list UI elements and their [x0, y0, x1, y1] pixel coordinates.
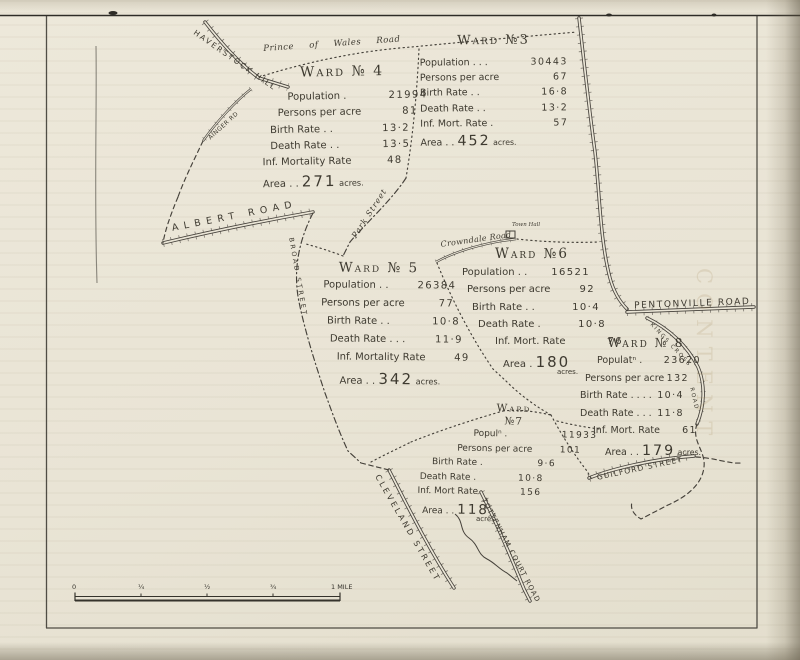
stat-label: Persons per acre — [457, 443, 532, 459]
stat-label: Inf. Mort. Rate — [593, 425, 660, 443]
stat-label: Death Rate . . — [420, 103, 486, 119]
area-value: 271 — [302, 172, 337, 191]
area-value: 342 — [378, 370, 413, 388]
stat-value: 13·2 — [382, 122, 410, 139]
ward-area-row: Area . . 179 acres. — [605, 443, 709, 459]
ward-area-row: Area . . 342 acres. — [339, 370, 472, 389]
stat-label: Birth Rate . — [432, 457, 483, 472]
ward-stat-row: Persons per acre77 — [321, 297, 454, 316]
ward-stat-row: Birth Rate . .16·8 — [420, 87, 568, 103]
stat-value: 9·6 — [537, 459, 556, 474]
stat-label: Birth Rate . . . . — [580, 390, 652, 408]
ward-stat-row: Persons per acre92 — [467, 284, 595, 301]
stat-value: 10·8 — [578, 319, 606, 336]
stat-label: Death Rate . . . — [330, 333, 406, 352]
stat-label: Persons per acre — [467, 284, 550, 301]
ward-title: Ward — [483, 402, 545, 415]
stat-value: 61 — [682, 425, 697, 443]
stat-label: Persons per acre — [585, 373, 664, 391]
stat-value: 67 — [553, 72, 568, 87]
stat-label: Persons per acre — [278, 107, 362, 125]
ward-block-ward-4: Ward № 4Population .21994Persons per acr… — [262, 63, 404, 192]
stat-value: 92 — [579, 284, 595, 301]
stat-value: 11·8 — [657, 408, 684, 426]
stat-label: Persons per acre — [321, 297, 405, 316]
ward-stat-row: Birth Rate . .10·4 — [472, 302, 600, 319]
stat-label: Birth Rate . . — [472, 302, 535, 319]
stat-label: Population . . — [462, 267, 527, 284]
stat-value: 16521 — [551, 267, 590, 284]
area-label: Area . . — [420, 137, 457, 148]
ward-title: Ward №3 — [419, 32, 567, 48]
area-label: Area . . — [339, 376, 378, 387]
ward-stat-row: Inf. Mort. Rate .57 — [420, 117, 568, 133]
scale-tick-label: ½ — [204, 583, 210, 591]
area-unit: acres. — [413, 376, 440, 386]
scale-bar-labels: 0¼½¾1 MILE — [75, 583, 355, 595]
stat-label: Population . — [287, 91, 346, 108]
stat-label: Inf. Mortality Rate — [263, 156, 352, 174]
area-label: Area . — [503, 359, 536, 370]
ward-title-number: №7 — [483, 415, 545, 428]
stat-value: 132 — [667, 373, 689, 391]
ward-stat-row: Death Rate .10·8 — [478, 319, 606, 336]
area-unit: acres — [476, 514, 546, 523]
ward-block-ward-3: Ward №3Population . . .30443Persons per … — [419, 32, 568, 149]
stat-label: Population . . — [323, 279, 388, 298]
stat-value: 57 — [553, 117, 568, 132]
town-hall-label: Town Hall — [512, 222, 540, 228]
stat-label: Population . . . — [420, 57, 488, 73]
ward-stat-row: Birth Rate . .10·8 — [327, 315, 460, 334]
scale-tick-label: 1 MILE — [331, 583, 352, 591]
stat-label: Inf. Mort. Rate — [495, 336, 566, 353]
ward-stat-row: Death Rate . .13·2 — [420, 102, 568, 118]
stat-label: Death Rate . — [478, 319, 541, 336]
stat-value: 13·2 — [541, 102, 568, 117]
stat-label: Death Rate . — [420, 471, 477, 486]
stat-value: 81 — [402, 106, 418, 123]
stat-value: 11·9 — [435, 334, 463, 352]
stat-value: 10·4 — [572, 302, 600, 319]
page-crease — [96, 46, 97, 283]
stat-value: 10·8 — [518, 473, 544, 488]
ward-block-ward-5: Ward № 5Population . .26384Persons per a… — [321, 259, 455, 388]
stat-value: 10·4 — [657, 390, 684, 408]
stat-label: Death Rate . . . — [580, 408, 652, 426]
ward-stat-row: Death Rate . . .11·8 — [580, 408, 684, 426]
stat-label: Inf. Mort. Rate . — [420, 118, 493, 134]
scale-tick-label: ¼ — [138, 583, 144, 591]
ward-stat-row: Inf. Mortality Rate49 — [337, 352, 470, 371]
ward-title: Ward №6 — [474, 246, 590, 262]
stat-value: 30443 — [530, 56, 567, 72]
area-value: 452 — [457, 133, 490, 149]
stat-label: Populatⁿ . — [597, 355, 642, 373]
stat-label: Birth Rate . . — [327, 315, 390, 334]
ward-title: Ward № 4 — [282, 63, 402, 81]
stat-label: Persons per acre — [420, 72, 499, 88]
stat-value: 16·8 — [541, 87, 568, 102]
stat-value: 48 — [387, 155, 403, 172]
ward-area-row: Area . . 452 acres. — [420, 132, 568, 149]
stat-value: 21994 — [389, 89, 428, 106]
scanned-map-page: { "wards": [ {"id":"ward-3","title":"War… — [0, 0, 800, 660]
ward-stat-row: Population . .26384 — [323, 279, 456, 298]
stat-label: Birth Rate . . — [420, 87, 480, 103]
stat-label: Inf. Mort Rate — [417, 486, 478, 502]
ward-stat-row: Inf. Mort. Rate61 — [593, 425, 697, 443]
ward-stat-row: Population . . .30443 — [420, 56, 568, 72]
area-label: Area . . — [263, 179, 302, 191]
ward-title: Ward № 5 — [302, 259, 455, 276]
ward-stat-row: Persons per acre67 — [420, 72, 568, 88]
ward-stat-row: Death Rate . . .11·9 — [330, 333, 463, 352]
stat-value: 10·8 — [432, 316, 460, 334]
stat-label: Birth Rate . . — [270, 124, 333, 141]
paper-background: Ward №3Population . . .30443Persons per … — [0, 0, 800, 660]
area-label: Area . . — [422, 505, 457, 516]
stat-label: Death Rate . . — [270, 140, 339, 157]
ward-stat-row: Birth Rate . . . .10·4 — [580, 390, 684, 408]
stat-value: 13·5 — [382, 139, 410, 156]
stat-label: Populⁿ . — [473, 429, 507, 444]
ward-block-ward-6: Ward №6Population . .16521Persons per ac… — [462, 246, 590, 376]
area-unit: acres. — [336, 178, 363, 188]
area-label: Area . . — [605, 447, 642, 458]
ward-stat-row: Population . .16521 — [462, 267, 590, 284]
ward-stat-row: Persons per acre132 — [585, 373, 689, 391]
stat-value: 26384 — [417, 280, 456, 298]
stat-value: 101 — [560, 445, 582, 460]
stat-value: 156 — [520, 488, 542, 503]
area-unit: acres. — [491, 138, 517, 147]
scale-tick-label: 0 — [72, 583, 76, 591]
stat-label: Inf. Mortality Rate — [337, 352, 426, 371]
scale-tick-label: ¾ — [270, 583, 276, 591]
stat-value: 77 — [439, 298, 455, 316]
